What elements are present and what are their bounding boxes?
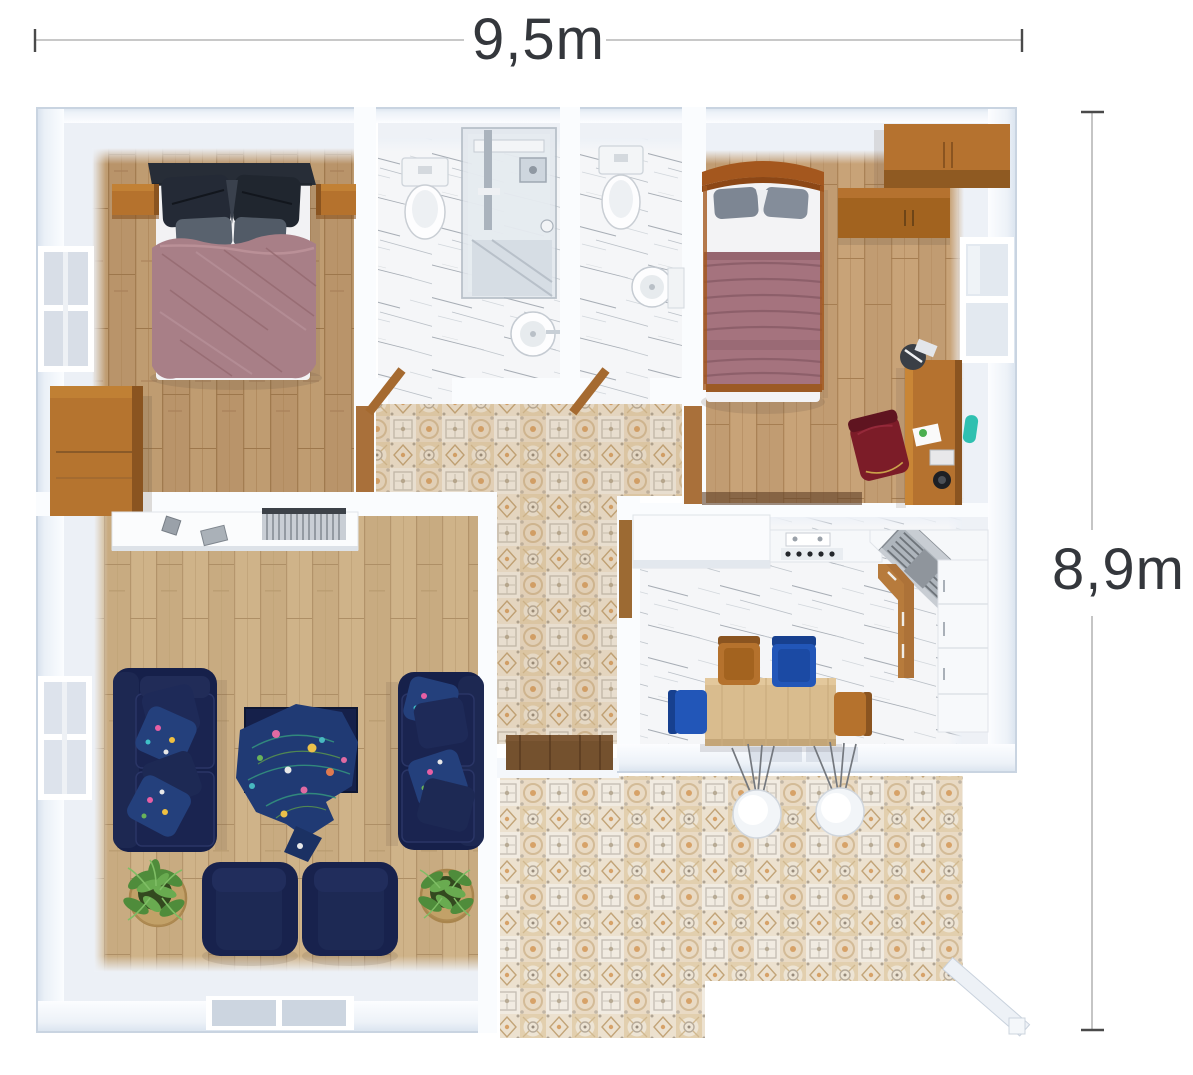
svg-text:9,5m: 9,5m <box>472 7 605 72</box>
svg-text:8,9m: 8,9m <box>1052 537 1185 602</box>
